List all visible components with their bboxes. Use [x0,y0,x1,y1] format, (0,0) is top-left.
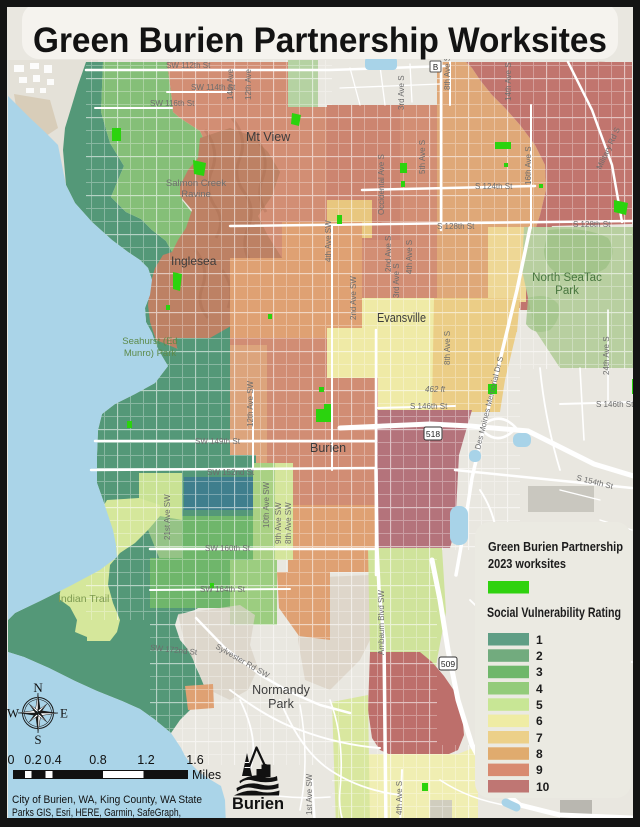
svg-text:S 128th St: S 128th St [437,222,475,231]
svg-text:E: E [60,706,68,721]
svg-text:2023 worksites: 2023 worksites [488,556,566,571]
svg-text:1.6: 1.6 [186,753,203,767]
svg-text:SW 112th St: SW 112th St [166,61,211,70]
svg-text:10: 10 [536,780,550,794]
svg-text:9: 9 [536,763,543,777]
svg-text:0.2: 0.2 [24,753,41,767]
svg-text:Indian Trail: Indian Trail [58,593,109,605]
svg-text:3rd Ave S: 3rd Ave S [397,75,406,110]
svg-text:2nd Ave SW: 2nd Ave SW [349,276,358,320]
svg-text:0: 0 [8,753,15,767]
svg-text:3rd Ave S: 3rd Ave S [392,263,401,298]
svg-text:12th Ave SW: 12th Ave SW [246,380,255,427]
svg-text:10th Ave SW: 10th Ave SW [262,481,271,528]
svg-text:City of Burien, WA, King Count: City of Burien, WA, King County, WA Stat… [12,794,202,806]
svg-text:462 ft: 462 ft [425,385,446,394]
svg-text:S: S [34,732,41,747]
svg-text:518: 518 [426,429,440,439]
svg-text:5: 5 [536,698,543,712]
svg-text:SW 164th St: SW 164th St [200,585,246,594]
svg-text:S 146th St: S 146th St [410,402,448,411]
svg-text:8th Ave SW: 8th Ave SW [284,502,293,544]
svg-text:7: 7 [536,731,543,745]
svg-text:Munro) Park: Munro) Park [124,348,177,359]
svg-text:0.4: 0.4 [44,753,61,767]
svg-text:0.8: 0.8 [89,753,106,767]
svg-text:SW 152nd St: SW 152nd St [207,468,255,477]
svg-text:4th Ave S: 4th Ave S [395,781,404,815]
svg-text:North SeaTac: North SeaTac [532,272,602,284]
svg-text:SW 116th St: SW 116th St [150,99,195,108]
svg-text:Parks GIS, Esri, HERE, Garmin,: Parks GIS, Esri, HERE, Garmin, SafeGraph… [12,807,181,819]
svg-text:Seahurst (Ed: Seahurst (Ed [122,336,177,347]
svg-text:S 128th St: S 128th St [573,220,611,229]
svg-text:3: 3 [536,665,543,679]
svg-text:8th Ave S: 8th Ave S [443,56,452,90]
svg-text:12th Ave: 12th Ave [244,68,253,100]
svg-text:21st Ave SW: 21st Ave SW [163,494,172,540]
svg-text:Ambaum Blvd SW: Ambaum Blvd SW [377,590,386,655]
svg-text:1st Ave SW: 1st Ave SW [305,773,314,815]
svg-text:4: 4 [536,682,543,696]
svg-text:Inglesea: Inglesea [171,254,217,268]
svg-text:8th Ave S: 8th Ave S [443,331,452,365]
svg-text:Mt View: Mt View [246,130,291,144]
svg-text:5th Ave S: 5th Ave S [418,140,427,174]
svg-text:8: 8 [536,747,543,761]
svg-text:14th Ave: 14th Ave [226,68,235,100]
svg-text:9th Ave SW: 9th Ave SW [274,502,283,544]
svg-text:SW 149th St: SW 149th St [195,437,241,446]
svg-text:Salmon Creek: Salmon Creek [166,178,226,189]
svg-text:Park: Park [555,285,579,297]
svg-text:16th Ave S: 16th Ave S [524,146,533,185]
svg-text:2: 2 [536,649,543,663]
svg-text:24th Ave S: 24th Ave S [602,336,611,375]
svg-text:SW 160th St: SW 160th St [205,544,251,553]
svg-text:S 146th St: S 146th St [596,400,634,409]
svg-text:Green Burien Partnership: Green Burien Partnership [488,539,623,554]
svg-text:1: 1 [536,633,543,647]
svg-text:509: 509 [441,659,455,669]
svg-text:6: 6 [536,714,543,728]
svg-text:S 124th St: S 124th St [475,182,513,191]
svg-text:Social Vulnerability Rating: Social Vulnerability Rating [487,604,621,620]
svg-text:W: W [7,706,20,721]
svg-text:Ravine: Ravine [181,189,211,200]
svg-text:Miles: Miles [192,768,221,782]
svg-text:Normandy: Normandy [252,683,310,697]
svg-text:N: N [33,680,43,695]
svg-text:4th Ave SW: 4th Ave SW [324,220,333,262]
svg-text:Green Burien Partnership Works: Green Burien Partnership Worksites [33,21,607,60]
svg-text:Park: Park [268,697,294,711]
svg-text:Burien: Burien [310,441,346,455]
svg-text:Burien: Burien [232,795,284,813]
svg-text:Occidental Ave S: Occidental Ave S [377,154,386,215]
svg-text:1.2: 1.2 [137,753,154,767]
svg-text:4th Ave S: 4th Ave S [405,240,414,274]
svg-text:Evansville: Evansville [377,311,426,325]
svg-text:B: B [433,63,438,72]
svg-text:14th Ave S: 14th Ave S [504,62,513,101]
